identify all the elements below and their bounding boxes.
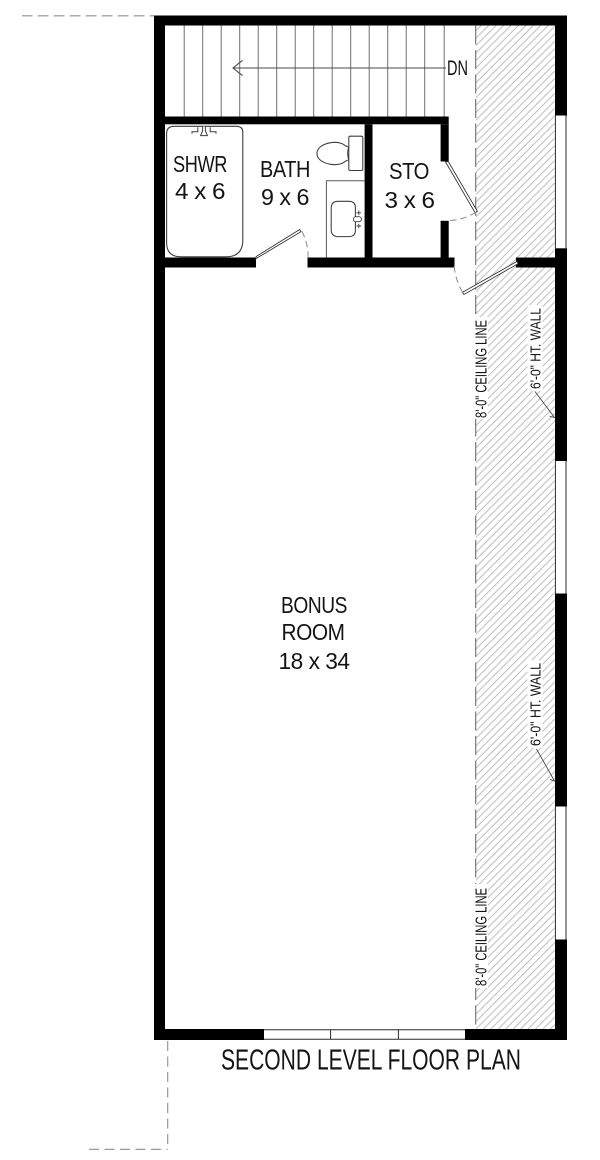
- svg-text:SHWR: SHWR: [173, 151, 227, 177]
- svg-text:4 x 6: 4 x 6: [175, 178, 225, 204]
- svg-text:3 x 6: 3 x 6: [385, 187, 435, 213]
- svg-text:8'-0" CEILING LINE: 8'-0" CEILING LINE: [474, 320, 491, 418]
- svg-text:6'-0" HT. WALL: 6'-0" HT. WALL: [529, 663, 545, 746]
- svg-text:STO: STO: [389, 158, 429, 184]
- svg-text:BATH: BATH: [260, 156, 310, 182]
- svg-text:9 x 6: 9 x 6: [261, 184, 309, 210]
- svg-text:ROOM: ROOM: [282, 619, 345, 645]
- svg-text:18 x 34: 18 x 34: [279, 648, 351, 674]
- svg-text:6'-0" HT. WALL: 6'-0" HT. WALL: [529, 308, 545, 389]
- svg-text:8'-0" CEILING LINE: 8'-0" CEILING LINE: [474, 888, 491, 986]
- svg-text:DN: DN: [447, 57, 468, 80]
- svg-text:BONUS: BONUS: [281, 592, 347, 618]
- svg-text:SECOND LEVEL FLOOR PLAN: SECOND LEVEL FLOOR PLAN: [221, 1045, 521, 1077]
